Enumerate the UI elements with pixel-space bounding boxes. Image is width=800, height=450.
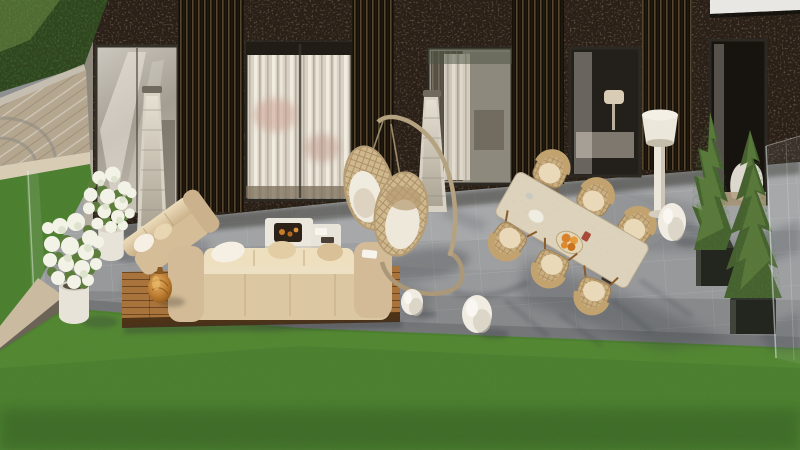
lamp-shade-top xyxy=(642,110,678,121)
sheer-curtain xyxy=(444,54,470,180)
interior-lamp-stem xyxy=(612,104,615,130)
heater-cap xyxy=(142,86,162,93)
heater-cap xyxy=(423,90,441,97)
egg-ornament-large xyxy=(462,295,492,333)
lamp-stem-shade xyxy=(661,143,665,213)
egg-ornament-by-lamp xyxy=(658,203,686,241)
ember xyxy=(287,231,292,236)
book xyxy=(321,237,334,243)
remote-on-arm xyxy=(362,249,378,259)
pillow xyxy=(268,241,296,259)
white-pot xyxy=(59,286,89,324)
sofa-arm-left xyxy=(168,246,204,322)
interior-warm-glow xyxy=(304,134,340,162)
egg-highlight xyxy=(663,208,673,224)
ember xyxy=(279,229,285,235)
egg-highlight xyxy=(466,299,478,317)
lounge-sofa-long xyxy=(168,239,392,322)
planter-edge-light xyxy=(730,300,736,334)
planter-front xyxy=(730,300,776,334)
egg-highlight xyxy=(404,292,412,304)
pillow xyxy=(317,243,343,261)
glass-door-2 xyxy=(246,42,352,200)
terrace-scene xyxy=(0,0,800,450)
lamp-shade-bottom xyxy=(646,139,674,147)
ember xyxy=(294,228,299,233)
glass-green-reflection xyxy=(428,48,512,64)
vase-highlight xyxy=(152,276,160,290)
interior-warm-glow xyxy=(253,98,297,132)
planter-edge-light xyxy=(696,248,701,286)
glass-door-4 xyxy=(570,48,640,176)
curtain-reflection xyxy=(574,52,592,174)
white-tray xyxy=(315,228,327,235)
interior-lamp-shade xyxy=(604,90,624,104)
slat-column xyxy=(178,0,244,212)
lawn-vignette xyxy=(0,408,800,450)
interior-furniture xyxy=(474,110,504,150)
terrace-render xyxy=(0,0,800,450)
